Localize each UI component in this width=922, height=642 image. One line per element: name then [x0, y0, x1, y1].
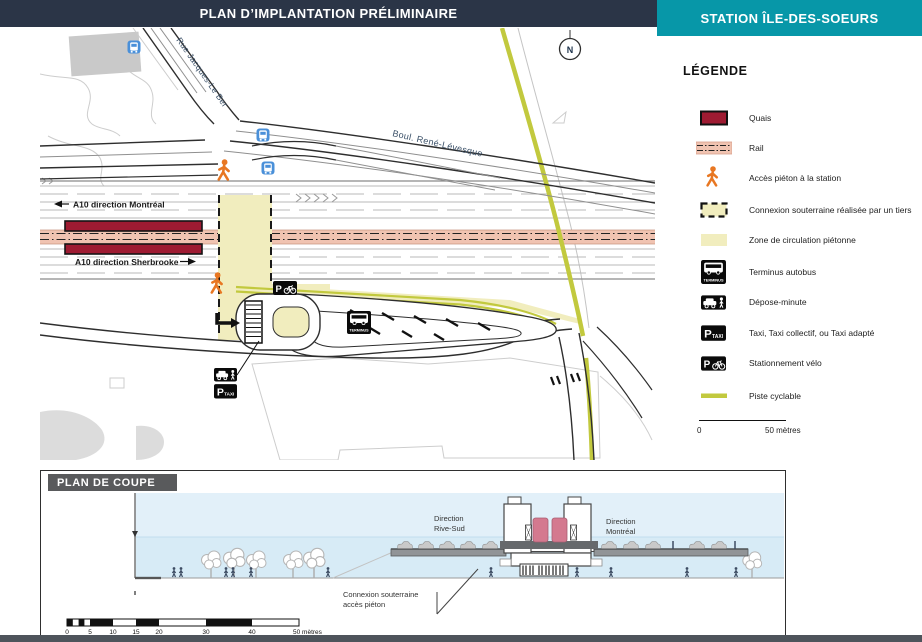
plan-title-bar: PLAN D’IMPLANTATION PRÉLIMINAIRE — [0, 0, 657, 27]
legend-scale-bar — [699, 420, 786, 421]
bike-parking-sign-icon — [701, 356, 726, 371]
street-label-rene-levesque: Boul. René-Lévesque — [392, 128, 484, 158]
cross-section-panel: Direction Rive-Sud Direction Montréal Co… — [40, 470, 786, 637]
drop-off-sign-icon — [701, 295, 726, 310]
page-title: PLAN D’IMPLANTATION PRÉLIMINAIRE — [200, 6, 458, 21]
legend-item-quais: Quais — [655, 110, 922, 126]
train-car — [552, 518, 567, 542]
pedestrian-access-icon — [212, 272, 222, 292]
direction-montreal-label: Direction Montréal — [606, 517, 638, 536]
site-plan-map: TERMINUS P TAXI P — [40, 28, 655, 460]
bottom-accent-bar — [0, 635, 922, 642]
legend-item-piste: Piste cyclable — [655, 391, 922, 401]
quai-south — [65, 244, 202, 254]
station-title: STATION ÎLE-DES-SOEURS — [700, 11, 878, 26]
quai-north — [65, 221, 202, 231]
a10-sherbrooke-label: A10 direction Sherbrooke — [75, 257, 196, 267]
legend-item-zone: Zone de circulation piétonne — [655, 232, 922, 248]
pedestrian-zone-swatch — [699, 232, 729, 248]
svg-text:A10 direction Montréal: A10 direction Montréal — [73, 200, 165, 210]
direction-rive-sud-label: Direction Rive-Sud — [434, 514, 466, 533]
rail-swatch — [696, 140, 732, 156]
legend-item-connexion: Connexion souterraine réalisée par un ti… — [655, 201, 922, 219]
building-footprint — [69, 32, 142, 77]
bus-stop-icon — [262, 162, 275, 175]
plan-page: PLAN D’IMPLANTATION PRÉLIMINAIRE STATION… — [0, 0, 922, 642]
taxi-sign-icon — [701, 325, 726, 341]
legend-item-velo: Stationnement vélo — [655, 356, 922, 371]
bus-terminus-sign-icon — [701, 260, 726, 284]
pedestrian-access-icon — [219, 159, 229, 179]
bus-stop-icon — [128, 41, 141, 54]
station-entrance-windows — [520, 564, 568, 576]
station-title-bar: STATION ÎLE-DES-SOEURS — [657, 0, 922, 36]
underground-connection-swatch — [699, 201, 729, 219]
svg-text:N: N — [567, 45, 574, 55]
a10-montreal-label: A10 direction Montréal — [54, 200, 165, 210]
cross-section-drawing: Direction Rive-Sud Direction Montréal Co… — [41, 471, 785, 636]
bus-stop-icon — [257, 129, 270, 142]
legend-panel: LÉGENDE Quais Rail — [655, 36, 922, 466]
pedestrian-access-icon — [705, 166, 720, 189]
kiss-and-ride-loop — [236, 294, 320, 350]
legend-item-taxi: Taxi, Taxi collectif, ou Taxi adapté — [655, 325, 922, 341]
legend-item-depose: Dépose-minute — [655, 295, 922, 310]
bus-terminus-sign-icon — [347, 311, 371, 334]
underground-connection-label: Connexion souterraine accès piéton — [343, 590, 421, 609]
coupe-scale-bar: 0 5 10 15 20 30 40 50 mètres — [65, 619, 322, 636]
svg-text:A10 direction Sherbrooke: A10 direction Sherbrooke — [75, 257, 179, 267]
drop-off-sign-icon — [214, 368, 237, 381]
cross-section-title: PLAN DE COUPE — [57, 477, 155, 489]
legend-item-acces-pieton: Accès piéton à la station — [655, 166, 922, 190]
legend-item-terminus: Terminus autobus — [655, 260, 922, 284]
legend-title: LÉGENDE — [683, 64, 748, 78]
legend-item-rail: Rail — [655, 140, 922, 156]
bike-path-swatch — [699, 391, 729, 401]
legend-scale-start: 0 — [697, 426, 701, 435]
train-car — [533, 518, 548, 542]
quais-swatch — [699, 110, 729, 126]
legend-scale-end: 50 mètres — [765, 426, 801, 435]
cross-section-title-chip: PLAN DE COUPE — [48, 474, 177, 491]
taxi-sign-icon — [214, 384, 237, 399]
north-arrow-icon: N — [560, 30, 581, 60]
platform-hatch — [245, 301, 262, 343]
bike-parking-sign-icon — [273, 281, 297, 295]
